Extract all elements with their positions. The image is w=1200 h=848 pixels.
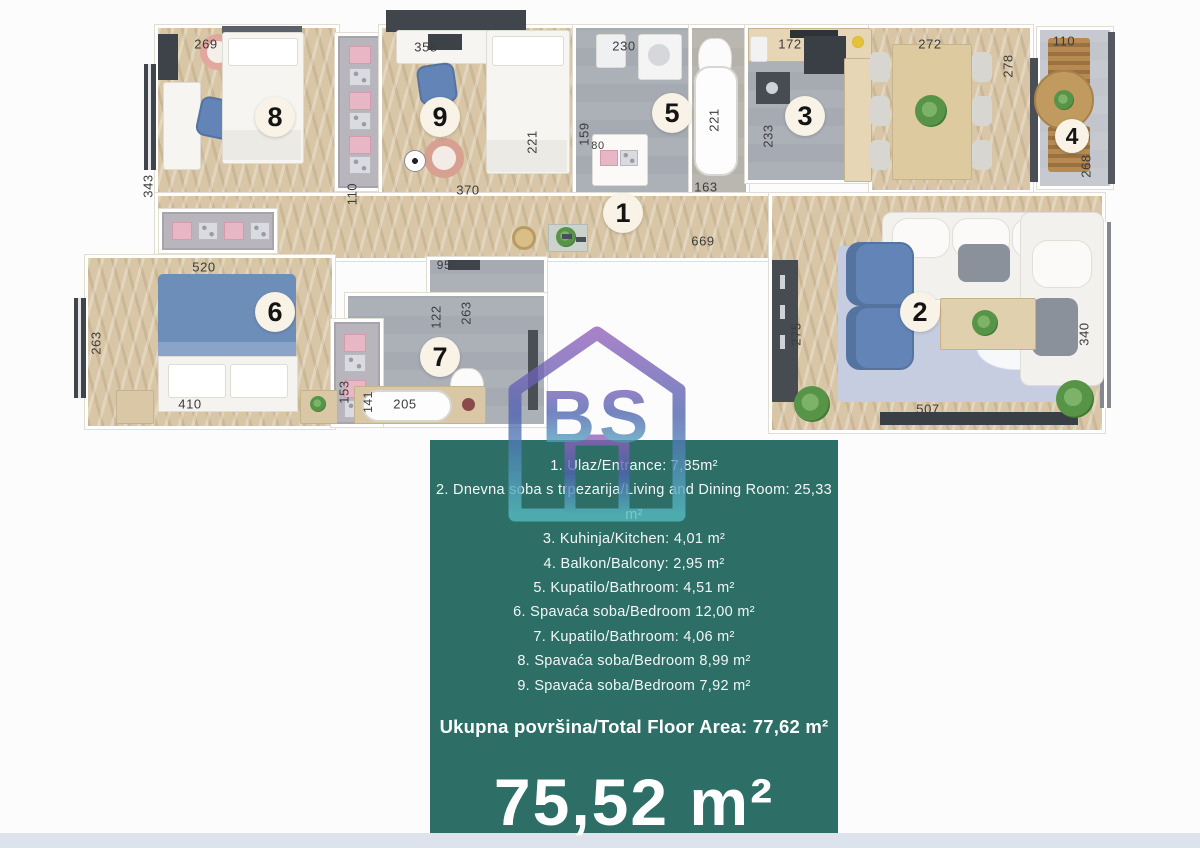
- coffee-table-plant: [972, 310, 998, 336]
- kitchen-stove: [804, 36, 846, 74]
- vanity-decor: [462, 398, 475, 411]
- dim-room6-wardrobe: 153: [337, 380, 352, 404]
- legend-item: 3. Kuhinja/Kitchen: 4,01 m²: [430, 527, 838, 551]
- shower-valve-bath7: [448, 260, 480, 270]
- sofa-throw-dark: [958, 244, 1010, 282]
- dim-hallway: 669: [691, 234, 715, 249]
- football-room9: [404, 150, 426, 172]
- legend-item: 5. Kupatilo/Bathroom: 4,51 m²: [430, 576, 838, 600]
- sideboard-detail: [780, 275, 785, 289]
- kitchen-sink-bowl: [766, 82, 778, 94]
- pillow-room6: [230, 364, 288, 398]
- bs-house-logo: BS: [508, 326, 686, 522]
- dim-room9-bottom: 370: [456, 183, 480, 198]
- window-room6-left: [74, 298, 86, 398]
- dim-dining-width: 272: [918, 37, 942, 52]
- kitchen-appliance: [750, 36, 768, 62]
- armchair: [846, 242, 914, 306]
- dim-bath5-height: 159: [577, 122, 592, 146]
- storage-box: [250, 222, 270, 240]
- dim-bathtub: 221: [707, 108, 722, 132]
- legend-item: 4. Balkon/Balcony: 2,95 m²: [430, 552, 838, 576]
- pouf-room9: [424, 138, 464, 178]
- dim-bath7-top: 95: [437, 258, 452, 272]
- tv-console: [880, 412, 1078, 425]
- room-badge-bathroom7: 7: [420, 337, 460, 377]
- shoes: [576, 237, 586, 242]
- window-room8-left: [144, 64, 156, 170]
- storage-box: [198, 222, 218, 240]
- sideboard-detail: [780, 305, 785, 319]
- dim-balcony-width: 110: [1053, 34, 1076, 49]
- dim-bath5-closet: 80: [591, 140, 604, 152]
- dim-room6-height: 263: [89, 331, 104, 355]
- dining-chair: [870, 52, 890, 82]
- storage-box: [344, 354, 366, 372]
- total-area-label: Ukupna površina/Total Floor Area: 77,62 …: [430, 716, 838, 738]
- living-plant-right: [1056, 380, 1094, 418]
- dim-room8-height: 343: [141, 174, 156, 198]
- pillow-room9: [492, 36, 564, 66]
- dim-balcony-height: 268: [1079, 154, 1094, 178]
- storage-box: [349, 46, 371, 64]
- dim-room8-width: 269: [194, 37, 218, 52]
- nightstand-left: [116, 390, 154, 424]
- dim-bath7-v3: 141: [361, 391, 375, 413]
- storage-box: [349, 136, 371, 154]
- dining-chair: [870, 96, 890, 126]
- room-badge-bathroom5: 5: [652, 93, 692, 133]
- dim-wardrobe89: 110: [345, 183, 360, 206]
- balcony-table-plant: [1054, 90, 1074, 110]
- dim-dining-right: 278: [1001, 54, 1016, 78]
- window-dining-balcony: [1030, 58, 1038, 182]
- total-area-value: 75,52 m²: [430, 764, 838, 840]
- logo-text: BS: [542, 375, 653, 458]
- storage-box: [349, 112, 371, 130]
- room-badge-entrance: 1: [603, 193, 643, 233]
- pillow-room8: [228, 38, 298, 66]
- legend-item: 9. Spavaća soba/Bedroom 7,92 m²: [430, 674, 838, 698]
- room-badge-balcony: 4: [1055, 119, 1089, 153]
- dining-chair: [972, 96, 992, 126]
- storage-box: [620, 150, 638, 166]
- dining-table-plant: [915, 95, 947, 127]
- legend-item: 8. Spavaća soba/Bedroom 8,99 m²: [430, 649, 838, 673]
- pillow-room6: [168, 364, 226, 398]
- washing-machine-drum: [648, 44, 670, 66]
- sideboard-detail: [780, 335, 785, 349]
- nightstand-plant: [310, 396, 326, 412]
- bookshelf-room8: [158, 34, 178, 80]
- storage-box: [224, 222, 244, 240]
- dining-chair: [972, 52, 992, 82]
- room-badge-bedroom8: 8: [255, 97, 295, 137]
- dim-bath7-v2: 263: [459, 301, 474, 325]
- storage-box: [600, 150, 618, 166]
- hat-decor: [512, 226, 536, 250]
- dim-living-right: 340: [1077, 322, 1092, 346]
- dim-living-left: 275: [789, 322, 804, 346]
- dim-kitchen-width: 172: [778, 37, 802, 52]
- dim-bath7-vanity: 205: [393, 397, 417, 412]
- dim-room9-width: 358: [414, 40, 438, 55]
- storage-box: [349, 68, 371, 86]
- floor-plan-page: 269 343 110 358 221 370 230 159 80 221 1…: [0, 0, 1200, 848]
- storage-box: [349, 156, 371, 174]
- dining-chair: [972, 140, 992, 170]
- living-plant-left: [794, 386, 830, 422]
- dim-wc-bottom: 163: [694, 180, 718, 195]
- dim-kitchen-height: 233: [761, 124, 776, 148]
- dim-bath5-width: 230: [612, 39, 636, 54]
- sofa-cushion: [1032, 240, 1092, 288]
- dim-room6-bed: 410: [178, 397, 202, 412]
- kitchen-counter-right: [844, 58, 872, 182]
- balcony-right-wall: [1108, 32, 1115, 184]
- shoes: [562, 234, 572, 239]
- room-badge-bedroom9: 9: [420, 97, 460, 137]
- room-badge-bedroom6: 6: [255, 292, 295, 332]
- dining-chair: [870, 140, 890, 170]
- storage-box: [344, 334, 366, 352]
- legend-item: 7. Kupatilo/Bathroom: 4,06 m²: [430, 625, 838, 649]
- storage-box: [349, 92, 371, 110]
- dim-bath7-v1: 122: [429, 305, 444, 329]
- blanket-room8: [223, 130, 301, 160]
- sofa-cushion-dark: [1032, 298, 1078, 356]
- dim-room6-width: 520: [192, 260, 216, 275]
- room-badge-kitchen: 3: [785, 96, 825, 136]
- legend-item: 6. Spavaća soba/Bedroom 12,00 m²: [430, 600, 838, 624]
- room-badge-living: 2: [900, 292, 940, 332]
- bed-room6-fold: [158, 342, 296, 356]
- storage-box: [172, 222, 192, 240]
- shelf-room9-top: [386, 10, 526, 32]
- dim-living-bottom: 507: [916, 402, 940, 417]
- kitchen-decor-gold: [852, 36, 864, 48]
- dim-room9-bed: 221: [525, 130, 540, 154]
